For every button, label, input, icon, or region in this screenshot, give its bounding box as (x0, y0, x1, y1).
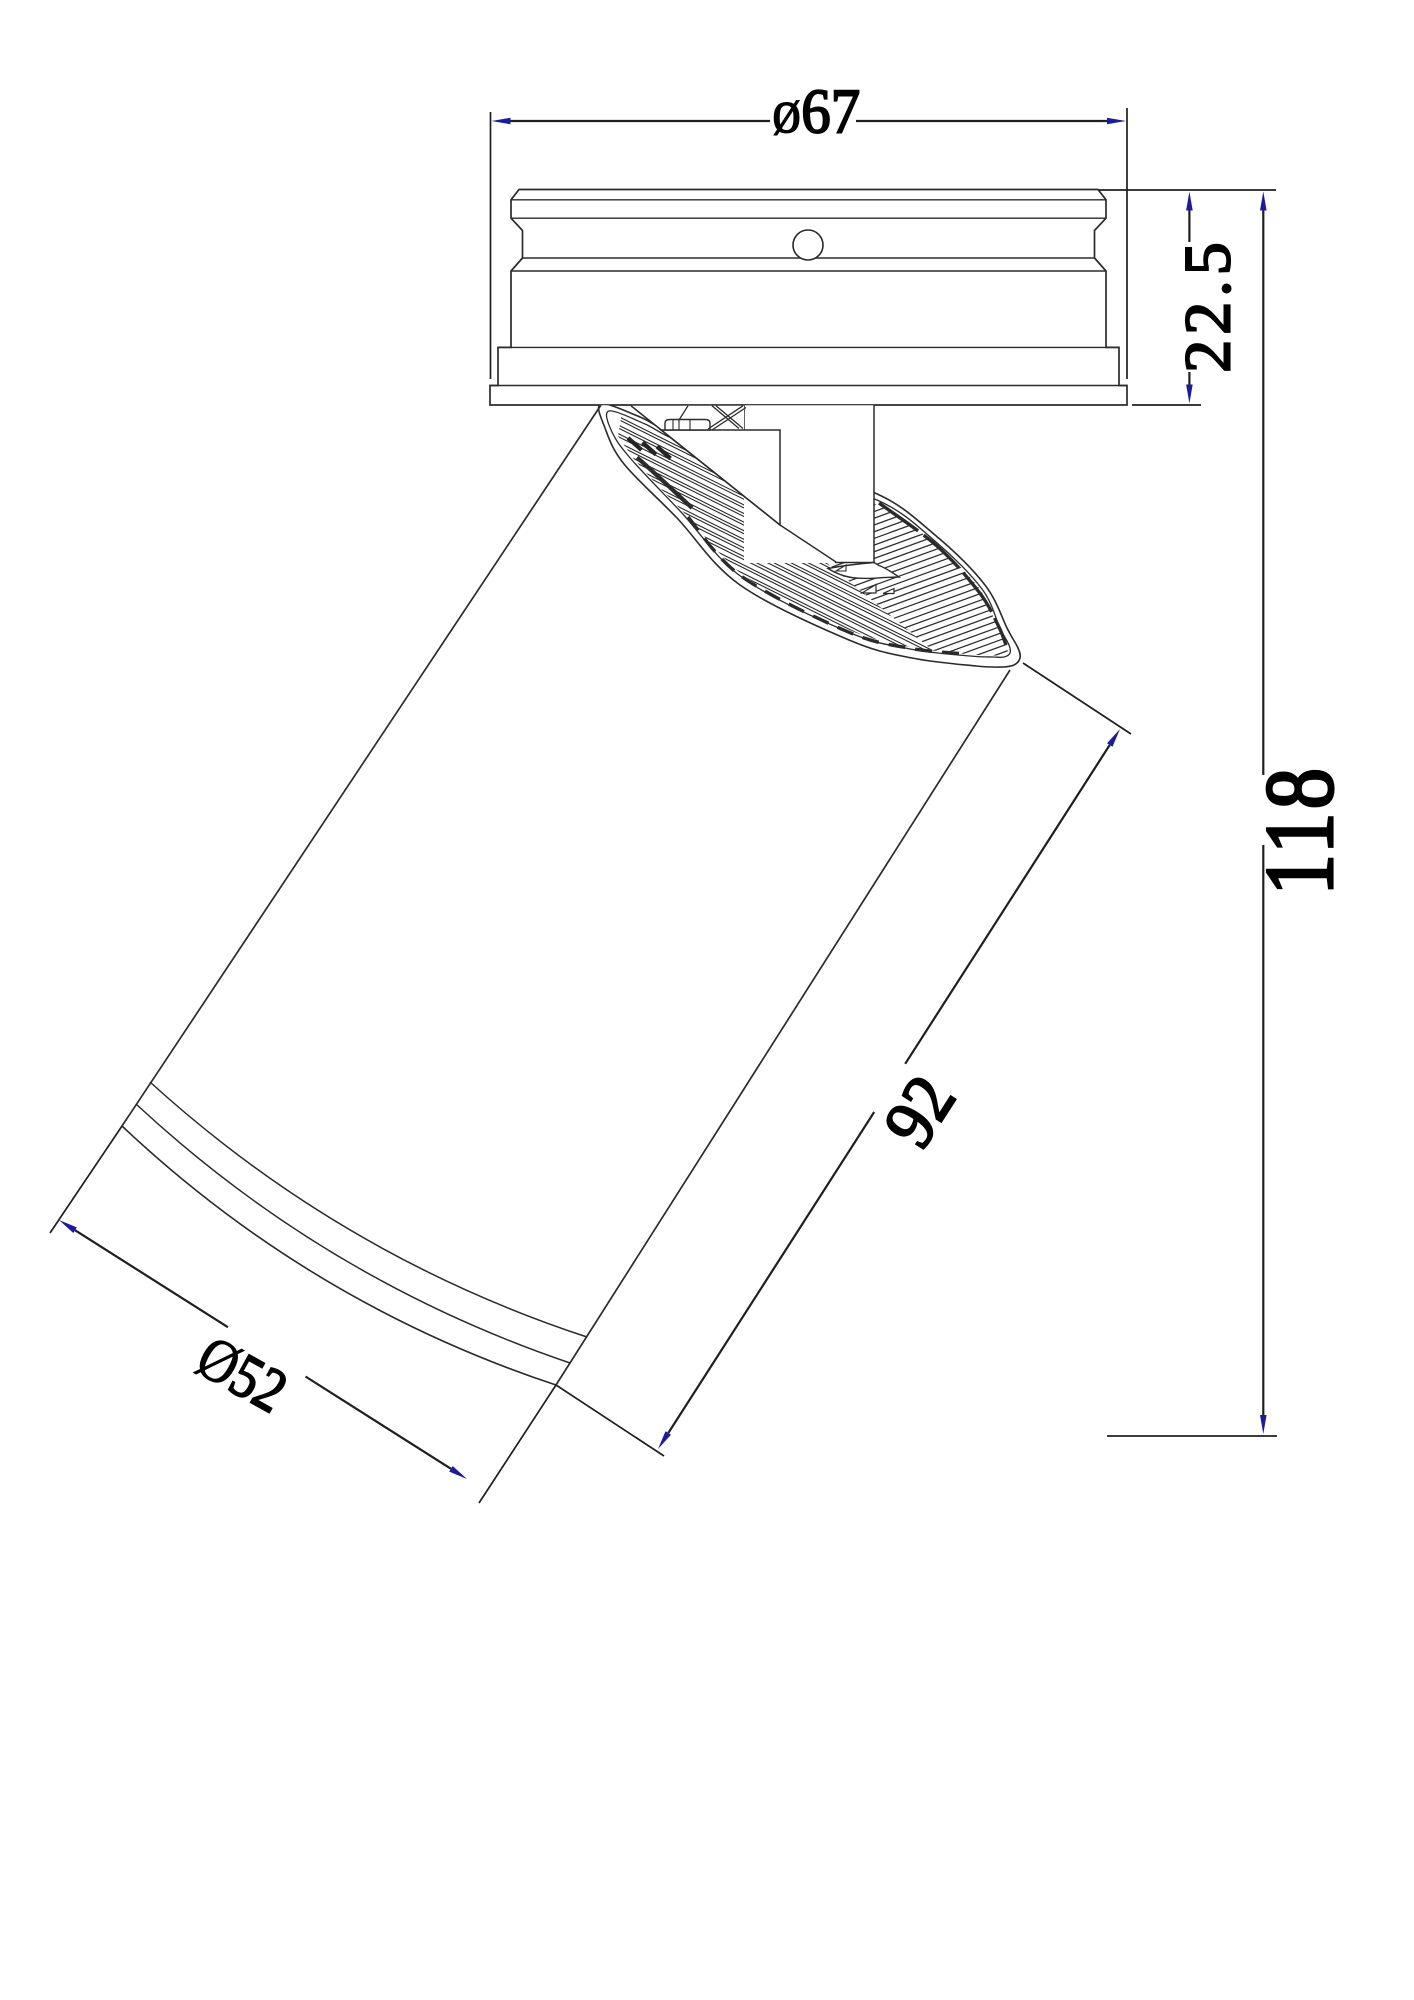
svg-text:118: 118 (1244, 765, 1353, 896)
svg-text:22.5: 22.5 (1171, 237, 1244, 373)
svg-text:ø67: ø67 (772, 76, 860, 147)
